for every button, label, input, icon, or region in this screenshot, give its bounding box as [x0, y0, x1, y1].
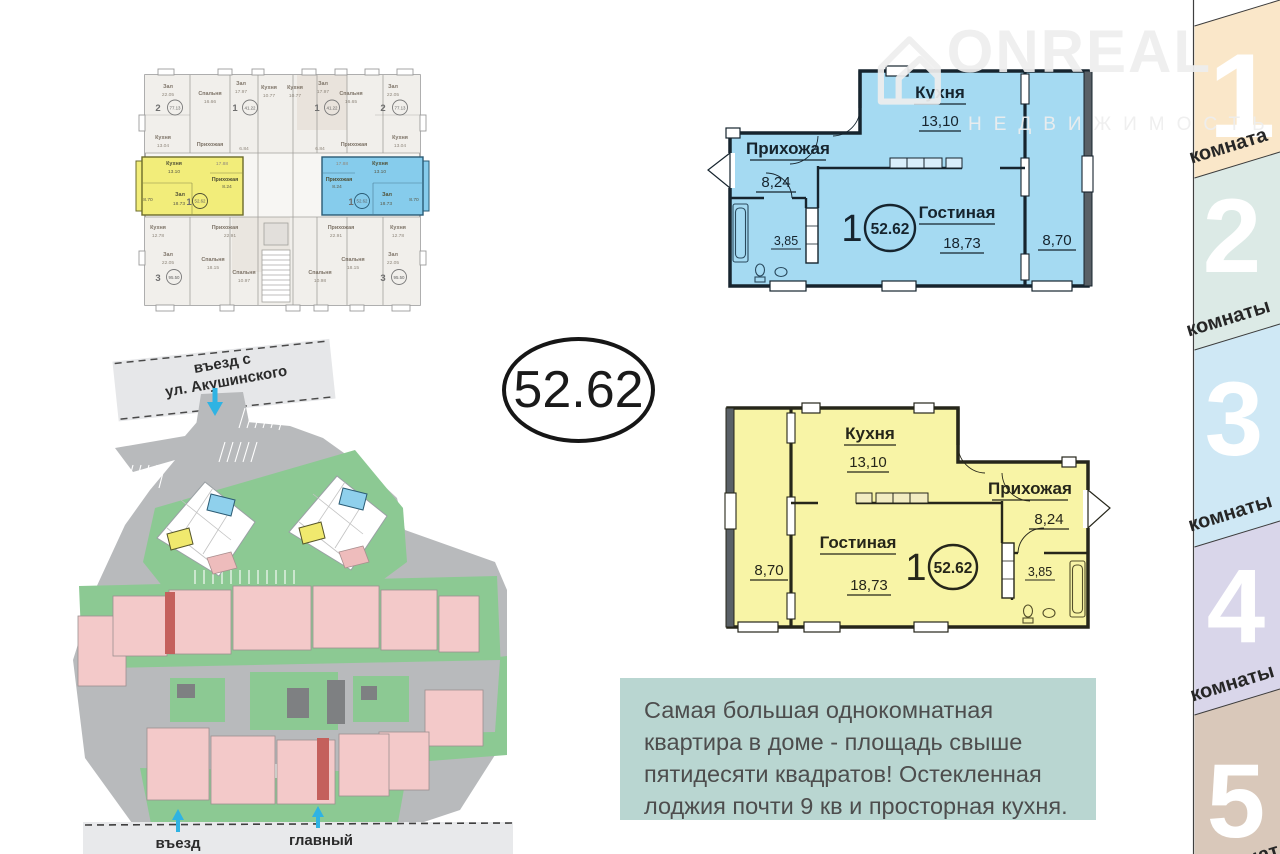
room-label: Прихожая — [746, 139, 830, 158]
room-label: 17.97 — [317, 89, 330, 95]
room-label: 22.91 — [224, 233, 237, 239]
building-floor-plan: Зал22.05277.13Спальня16.66Зал17.97141.22… — [92, 55, 472, 313]
room-label: 77.13 — [170, 106, 182, 111]
room-label: Зал — [163, 252, 173, 258]
room-label: 1 — [314, 103, 320, 114]
unit-area: 52.62 — [934, 560, 973, 577]
room-label: 12.78 — [152, 233, 165, 239]
room-label: Гостиная — [820, 533, 897, 552]
room-label: Кухня — [155, 135, 171, 141]
room-area: 13,10 — [849, 454, 887, 471]
room-label: Кухня — [845, 424, 895, 443]
entrance-door — [708, 153, 735, 188]
room-label: 12.78 — [392, 233, 405, 239]
tab-number: 3 — [1205, 361, 1263, 478]
room-area: 13,10 — [921, 113, 959, 130]
room-label: 17.88 — [216, 161, 229, 167]
entrance-door — [1083, 490, 1110, 528]
room-label: 17.97 — [235, 89, 248, 95]
room-label: 18.15 — [207, 265, 220, 271]
room-label: 18.15 — [347, 265, 360, 271]
room-label: Кухня — [166, 161, 182, 167]
room-label: 41.22 — [327, 106, 339, 111]
loggia-area: 8,70 — [754, 562, 783, 579]
room-label: 2 — [155, 103, 160, 114]
description-text: Самая большая однокомнатная квартира в д… — [644, 697, 1068, 819]
room-area: 18,73 — [943, 235, 981, 252]
bottom-entry-label: въезд — [155, 835, 201, 852]
room-label: 8.24 — [222, 184, 232, 190]
room-label: 16.65 — [345, 99, 358, 105]
top-apartments-row — [145, 75, 420, 153]
room-label: Спальня — [198, 91, 221, 97]
room-label: Кухня — [392, 135, 408, 141]
room-label: 22.05 — [387, 260, 400, 266]
room-label: Зал — [236, 81, 246, 87]
kitchen-counter — [856, 493, 928, 503]
unit-plan-blue: Кухня 13,10 Прихожая 8,24 Гостиная 18,73… — [700, 58, 1100, 298]
room-label: Спальня — [341, 257, 364, 263]
room-label: Кухня — [372, 161, 388, 167]
room-label: 10.98 — [314, 278, 327, 284]
description-box: Самая большая однокомнатная квартира в д… — [620, 678, 1096, 820]
room-label: 41.22 — [245, 106, 257, 111]
room-label: 3 — [155, 273, 160, 284]
total-area-badge: 52.62 — [502, 337, 655, 443]
room-label: 1 — [232, 103, 238, 114]
rooms-count: 1 — [905, 547, 926, 589]
room-label: Прихожая — [328, 225, 355, 231]
room-label: 13.04 — [157, 143, 170, 149]
site-plan-map: въезд с ул. Акушинского — [55, 330, 515, 854]
room-label: 2 — [380, 103, 385, 114]
vent-shaft — [1002, 543, 1014, 598]
room-label: Кухня — [150, 225, 166, 231]
building-connector — [317, 738, 329, 800]
room-label: 13.04 — [394, 143, 407, 149]
room-label: 22.05 — [162, 260, 175, 266]
room-label: 3 — [380, 273, 385, 284]
room-label: 10.77 — [263, 93, 276, 99]
kitchen-counter — [890, 158, 962, 168]
bath-area: 3,85 — [774, 234, 798, 248]
stairwell — [262, 223, 290, 302]
room-label: 95.50 — [169, 275, 181, 280]
room-label: Кухня — [390, 225, 406, 231]
room-area: 8,24 — [1034, 511, 1063, 528]
room-label: 77.13 — [395, 106, 407, 111]
room-label: 8.70 — [143, 197, 153, 203]
room-label: Кухня — [261, 85, 277, 91]
room-label: 10.97 — [238, 278, 251, 284]
room-label: Прихожая — [212, 225, 239, 231]
room-label: 22.05 — [387, 92, 400, 98]
tab-number: 5 — [1207, 743, 1265, 854]
room-label: 8.24 — [332, 184, 342, 190]
room-label: Зал — [175, 192, 185, 198]
room-label: Зал — [382, 192, 392, 198]
room-label: 1 — [186, 197, 192, 208]
vent-shaft — [806, 208, 818, 263]
tab-number: 2 — [1203, 178, 1261, 295]
unit-area: 52.62 — [871, 221, 910, 238]
room-label: 6.84 — [315, 146, 325, 152]
building-connector — [165, 592, 175, 654]
room-label: Прихожая — [212, 177, 239, 183]
room-label: Прихожая — [988, 479, 1072, 498]
room-label: 18.73 — [380, 201, 393, 207]
room-label: Гостиная — [919, 203, 996, 222]
room-label: Спальня — [232, 270, 255, 276]
room-label: Зал — [163, 84, 173, 90]
room-label: 17.88 — [336, 161, 349, 167]
page: Зал22.05277.13Спальня16.66Зал17.97141.22… — [0, 0, 1280, 854]
tab-number: 4 — [1207, 548, 1265, 665]
room-label: Зал — [318, 81, 328, 87]
room-label: Спальня — [201, 257, 224, 263]
room-label: 6.84 — [239, 146, 249, 152]
unit-plan-yellow: Кухня 13,10 Прихожая 8,24 Гостиная 18,73… — [718, 395, 1118, 640]
room-area: 18,73 — [850, 577, 888, 594]
room-label: Спальня — [308, 270, 331, 276]
room-label: 95.50 — [394, 275, 406, 280]
room-label: Кухня — [915, 83, 965, 102]
room-label: 52.62 — [357, 199, 369, 204]
room-label: 10.77 — [289, 93, 302, 99]
rooms-count-sidebar: 1 2 3 4 5 комната комнаты комнаты комнат… — [1185, 0, 1280, 854]
room-label: Спальня — [339, 91, 362, 97]
room-label: Зал — [388, 252, 398, 258]
room-label: 1 — [348, 197, 354, 208]
room-label: 13.10 — [168, 169, 181, 175]
loggia-area: 8,70 — [1042, 232, 1071, 249]
room-label: 8.70 — [409, 197, 419, 203]
rooms-count: 1 — [841, 208, 862, 250]
room-label: 22.91 — [330, 233, 343, 239]
room-label: Зал — [388, 84, 398, 90]
room-label: 22.05 — [162, 92, 175, 98]
room-area: 8,24 — [761, 174, 790, 191]
room-label: Прихожая — [197, 142, 224, 148]
room-label: 52.62 — [195, 199, 207, 204]
bottom-main-label: главный — [289, 832, 353, 849]
room-label: Кухня — [287, 85, 303, 91]
room-label: 18.73 — [173, 201, 186, 207]
room-label: 13.10 — [374, 169, 387, 175]
room-label: 16.66 — [204, 99, 217, 105]
room-label: Прихожая — [341, 142, 368, 148]
bath-area: 3,85 — [1028, 565, 1052, 579]
room-label: Прихожая — [326, 177, 353, 183]
